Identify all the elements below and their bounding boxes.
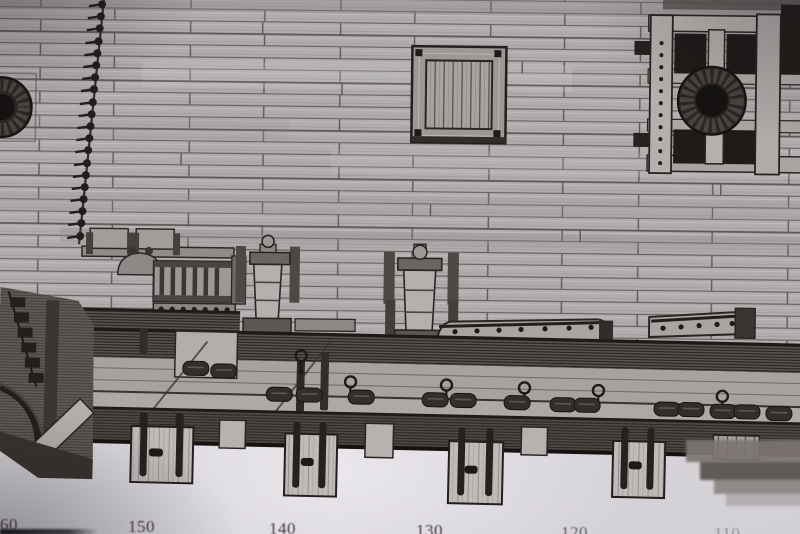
rope-wreath-port [677,66,746,135]
hinge-strap [318,422,326,488]
lid-handle [629,461,642,469]
batten-steps [153,261,233,302]
scale-baseline [0,529,98,534]
photographed-ship-plan-page: 60 150 140 130 120 110 [0,0,800,534]
gallery-hinge [633,133,649,147]
lid-handle [301,458,314,466]
scale-label-150: 150 [128,518,155,534]
window-pane [673,129,705,163]
ship-plan-drawing [0,0,800,534]
scale-label-110: 110 [714,525,740,534]
closed-gunport-lid [411,46,506,143]
bow-structure [0,287,97,479]
hinge-strap [292,422,300,488]
gallery-hinge [634,41,650,55]
blurred-hull-foreground [686,440,800,506]
swivel-post [235,235,300,333]
scale-label-140: 140 [269,520,296,534]
hinge-strap [646,428,654,490]
scale-label-130: 130 [416,522,443,534]
chainplate-strap [139,328,148,354]
window-pane [726,34,756,74]
quarter-gallery [633,0,800,175]
scale-label-120: 120 [561,524,588,534]
chainplate-strap [320,352,329,410]
lid-handle [149,448,163,456]
window-pane [723,130,755,164]
gallery-right-post [755,14,781,174]
lid-handle [465,466,478,474]
hinge-strap [620,427,628,489]
